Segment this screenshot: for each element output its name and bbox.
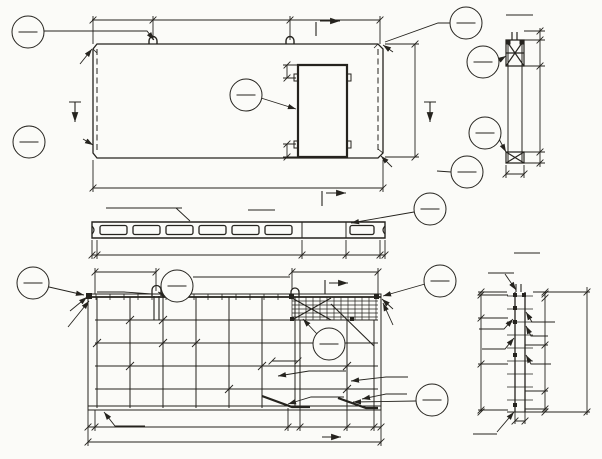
callout-2-4 <box>12 16 45 49</box>
callout-II-6-right <box>451 156 484 189</box>
section-3-3-geometry <box>488 253 540 412</box>
plan-opening <box>294 65 351 157</box>
callout-5-4 <box>414 193 447 226</box>
callout-3-4 <box>467 46 500 79</box>
drawing-linework <box>0 0 602 459</box>
callout-4-4 <box>469 117 502 150</box>
callout-1-12 <box>424 265 457 298</box>
callout-6-4 <box>230 79 263 112</box>
section-2-2-geometry <box>506 15 533 163</box>
section-3-3-leaders <box>473 312 555 434</box>
callout-1a-13 <box>17 267 50 300</box>
blueprint-sheet <box>0 0 602 459</box>
plan-leaders <box>44 23 506 172</box>
corner-anchor <box>86 293 92 299</box>
callout-2-13 <box>161 270 194 303</box>
section-1-1-geometry <box>92 208 385 238</box>
bottom-view-leaders <box>49 280 425 437</box>
callout-3-14 <box>313 328 346 361</box>
callout-1-4 <box>450 7 483 40</box>
callout-II-6-left <box>13 126 46 159</box>
bent-bar <box>262 396 310 407</box>
callout-4-11 <box>416 384 449 417</box>
section-3-3-dims <box>478 287 591 424</box>
